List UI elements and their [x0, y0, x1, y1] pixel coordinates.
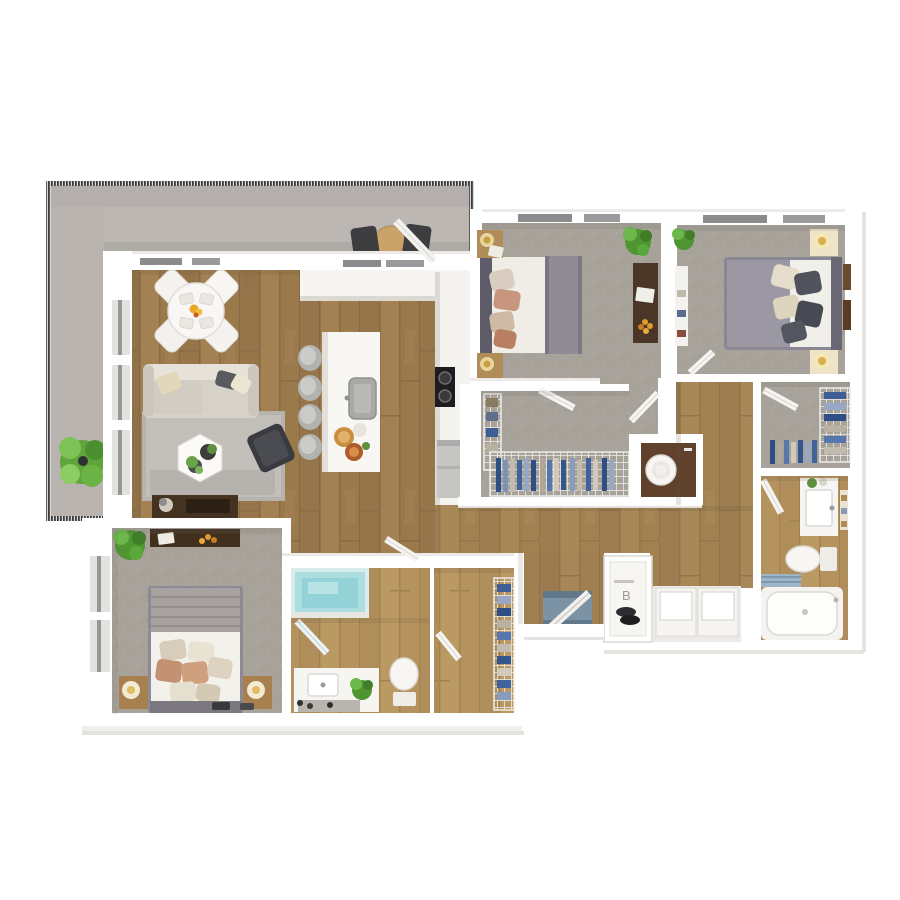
svg-text:B: B — [622, 588, 631, 603]
